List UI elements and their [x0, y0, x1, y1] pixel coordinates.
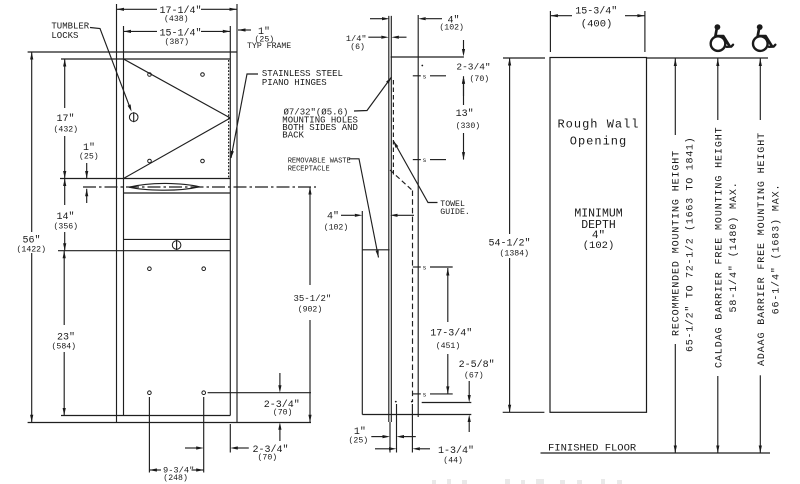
svg-text:s: s	[423, 265, 427, 272]
svg-text:PIANO HINGES: PIANO HINGES	[262, 78, 327, 88]
svg-text:65-1/2″ TO 72-1/2 (1663 TO 184: 65-1/2″ TO 72-1/2 (1663 TO 1841)	[685, 137, 697, 352]
svg-text:(248): (248)	[163, 473, 188, 483]
svg-text:(584): (584)	[52, 342, 77, 352]
svg-text:(44): (44)	[443, 455, 463, 465]
svg-text:(902): (902)	[298, 305, 323, 315]
svg-text:(400): (400)	[581, 19, 613, 31]
svg-text:(387): (387)	[165, 37, 190, 47]
svg-text:(67): (67)	[464, 371, 484, 381]
svg-text:2-3/4″: 2-3/4″	[456, 62, 490, 73]
svg-text:54-1/2″: 54-1/2″	[489, 238, 531, 250]
svg-text:2-5/8″: 2-5/8″	[459, 359, 495, 371]
svg-text:REMOVABLE WASTE: REMOVABLE WASTE	[288, 158, 351, 166]
svg-text:(438): (438)	[164, 14, 189, 24]
svg-text:(70): (70)	[470, 74, 490, 84]
svg-text:14″: 14″	[57, 211, 75, 223]
svg-text:(432): (432)	[54, 125, 79, 135]
svg-text:(70): (70)	[258, 453, 278, 463]
svg-text:CALDAG BARRIER FREE MOUNTING H: CALDAG BARRIER FREE MOUNTING HEIGHT	[715, 126, 726, 368]
svg-text:1-3/4″: 1-3/4″	[438, 445, 474, 457]
svg-text:(102): (102)	[583, 240, 615, 252]
svg-text:RECEPTACLE: RECEPTACLE	[288, 165, 330, 173]
svg-text:s: s	[423, 392, 427, 399]
svg-text:35-1/2″: 35-1/2″	[294, 294, 332, 304]
svg-text:66-1/4″ (1683) MAX.: 66-1/4″ (1683) MAX.	[771, 184, 783, 315]
svg-text:RECOMMENDED MOUNTING HEIGHT: RECOMMENDED MOUNTING HEIGHT	[672, 150, 683, 336]
svg-text:BACK: BACK	[282, 131, 304, 141]
svg-text:ADAAG BARRIER FREE MOUNTING HE: ADAAG BARRIER FREE MOUNTING HEIGHT	[757, 132, 768, 366]
svg-text:GUIDE.: GUIDE.	[440, 208, 469, 217]
svg-text:TYP FRAME: TYP FRAME	[247, 42, 291, 51]
svg-text:17″: 17″	[57, 113, 75, 125]
svg-text:LOCKS: LOCKS	[51, 31, 78, 41]
svg-text:Rough Wall: Rough Wall	[557, 117, 639, 131]
svg-text:13″: 13″	[456, 108, 474, 120]
svg-text:4″: 4″	[327, 211, 339, 223]
svg-text:(6): (6)	[350, 42, 365, 52]
svg-text:(25): (25)	[349, 435, 369, 445]
svg-text:15-3/4″: 15-3/4″	[575, 5, 617, 17]
svg-text:17-3/4″: 17-3/4″	[430, 328, 472, 340]
svg-text:(330): (330)	[456, 121, 481, 131]
svg-text:FINISHED FLOOR: FINISHED FLOOR	[548, 443, 637, 455]
svg-text:(102): (102)	[324, 222, 349, 232]
svg-text:(356): (356)	[54, 222, 79, 232]
svg-text:(1384): (1384)	[500, 249, 529, 259]
svg-text:TUMBLER: TUMBLER	[51, 22, 89, 32]
svg-text:(451): (451)	[436, 341, 461, 351]
svg-text:(25): (25)	[79, 152, 99, 162]
svg-text:s: s	[423, 73, 427, 80]
svg-text:Opening: Opening	[570, 135, 627, 149]
svg-text:s: s	[423, 157, 427, 164]
svg-text:(70): (70)	[273, 408, 293, 418]
svg-text:(1422): (1422)	[17, 245, 46, 255]
svg-text:(102): (102)	[439, 23, 464, 33]
svg-text:58-1/4″ (1480) MAX.: 58-1/4″ (1480) MAX.	[728, 181, 740, 312]
